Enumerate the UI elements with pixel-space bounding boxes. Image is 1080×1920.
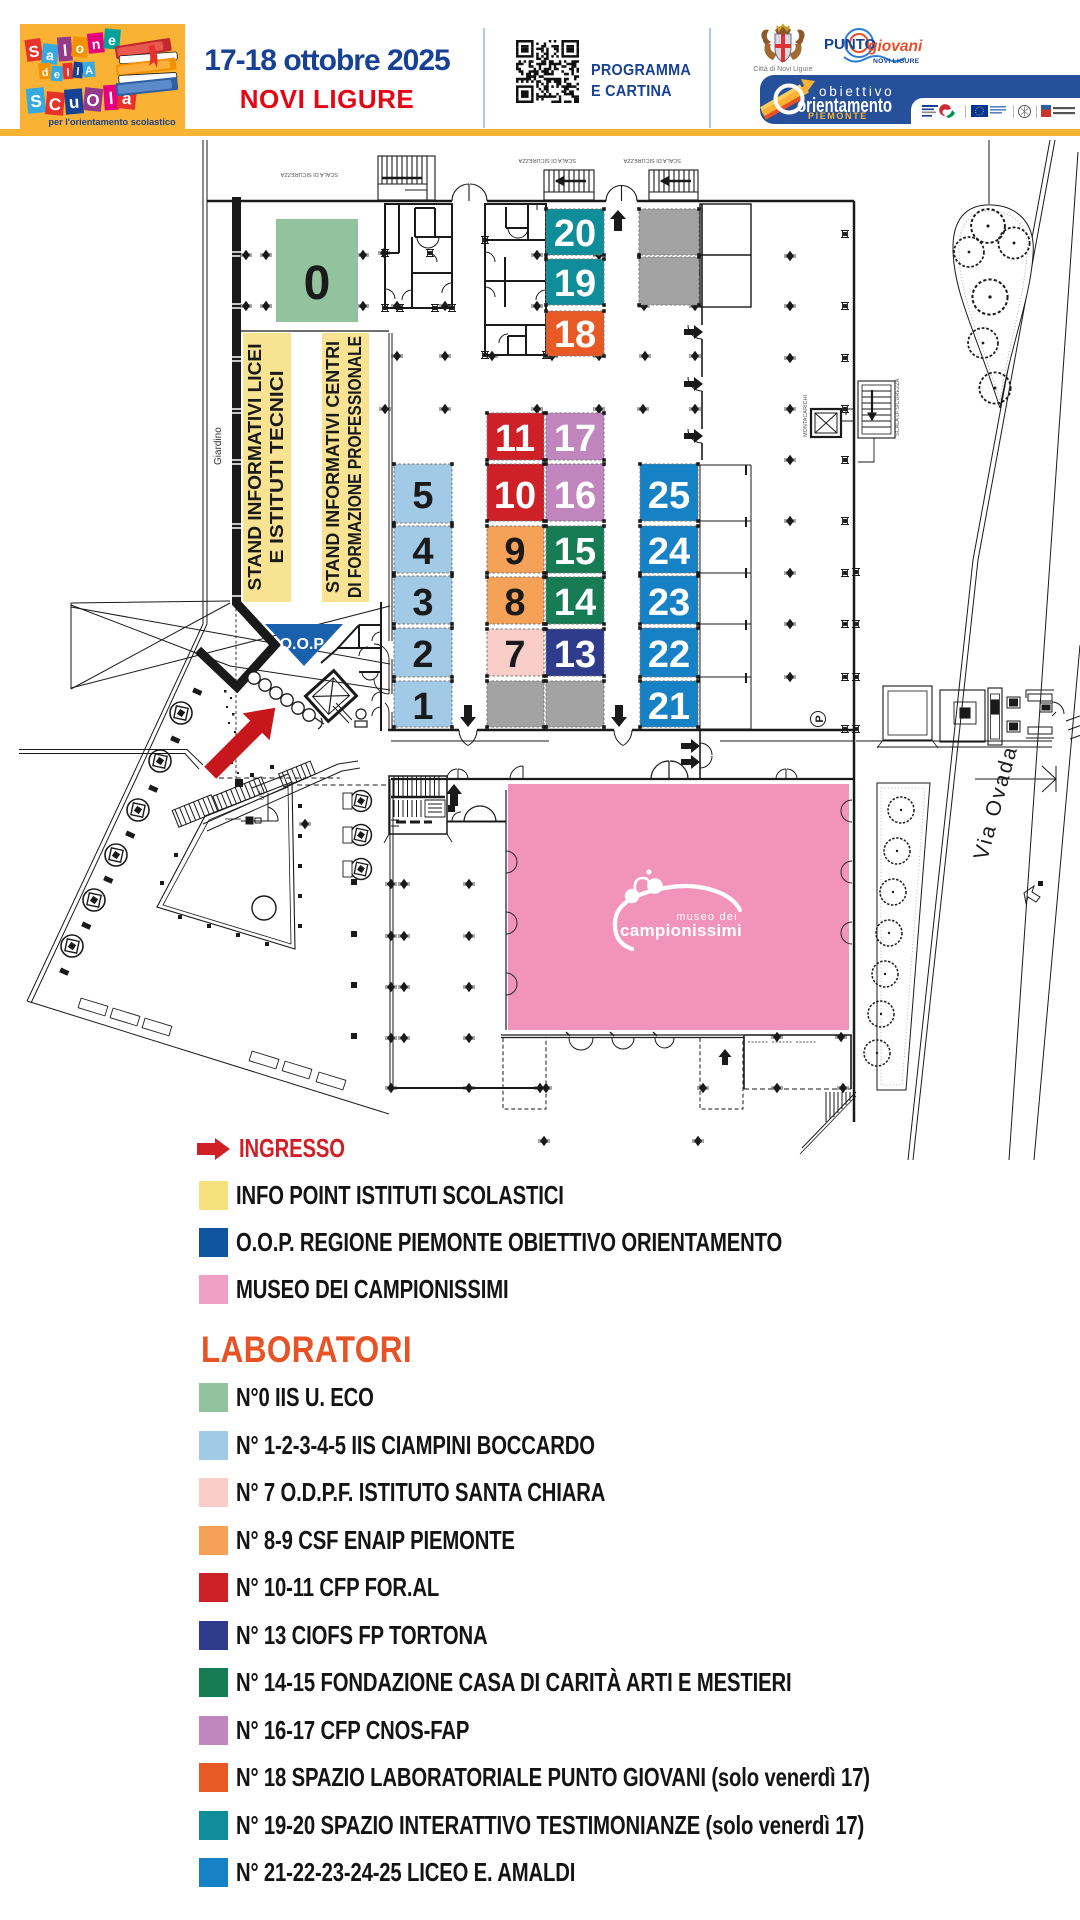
svg-text:20: 20 (554, 213, 596, 255)
svg-text:STAND INFORMATIVI LICEI: STAND INFORMATIVI LICEI (244, 344, 265, 591)
svg-text:21: 21 (648, 686, 690, 728)
svg-text:SCALA DI SICUREZZA: SCALA DI SICUREZZA (280, 171, 338, 177)
svg-text:23: 23 (648, 582, 690, 624)
svg-text:9: 9 (504, 531, 525, 573)
svg-text:Giardino: Giardino (213, 427, 224, 465)
svg-text:24: 24 (648, 531, 690, 573)
svg-text:P: P (814, 715, 826, 722)
svg-text:E ISTITUTI TECNICI: E ISTITUTI TECNICI (266, 371, 287, 564)
svg-text:17: 17 (554, 418, 596, 460)
svg-text:22: 22 (648, 634, 690, 676)
svg-text:SCALA DI SICUREZZA: SCALA DI SICUREZZA (895, 378, 901, 436)
svg-text:4: 4 (412, 531, 433, 573)
svg-text:campionissimi: campionissimi (620, 921, 742, 940)
svg-text:DI FORMAZIONE PROFESSIONALE: DI FORMAZIONE PROFESSIONALE (344, 336, 365, 598)
svg-text:11: 11 (495, 418, 535, 460)
svg-text:SCALA DI SICUREZZA: SCALA DI SICUREZZA (518, 157, 576, 163)
svg-text:0: 0 (304, 257, 331, 310)
svg-text:3: 3 (412, 582, 433, 624)
svg-text:13: 13 (554, 634, 596, 676)
svg-text:25: 25 (648, 475, 690, 517)
svg-text:5: 5 (412, 475, 433, 517)
svg-text:STAND INFORMATIVI CENTRI: STAND INFORMATIVI CENTRI (322, 341, 343, 593)
svg-text:18: 18 (554, 314, 596, 356)
svg-text:16: 16 (554, 475, 596, 517)
svg-text:8: 8 (504, 582, 525, 624)
svg-text:10: 10 (494, 475, 536, 517)
svg-text:MONTACARICHI: MONTACARICHI (803, 394, 809, 437)
svg-text:SCALA DI SICUREZZA: SCALA DI SICUREZZA (623, 157, 681, 163)
svg-text:Via Ovada: Via Ovada (970, 743, 1023, 862)
svg-text:15: 15 (554, 531, 596, 573)
svg-text:19: 19 (554, 263, 596, 305)
svg-text:1: 1 (412, 686, 433, 728)
svg-text:O.O.P.: O.O.P. (280, 636, 327, 653)
svg-text:7: 7 (504, 634, 525, 676)
svg-text:2: 2 (412, 634, 433, 676)
svg-text:14: 14 (554, 582, 596, 624)
